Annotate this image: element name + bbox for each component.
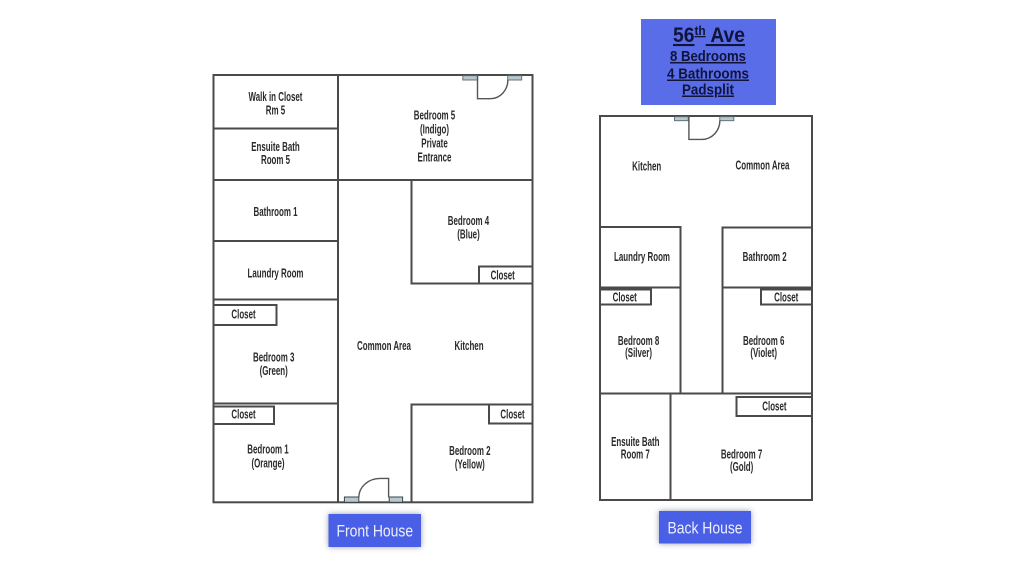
svg-text:Padsplit: Padsplit — [682, 82, 734, 99]
svg-text:8 Bedrooms: 8 Bedrooms — [670, 48, 746, 65]
svg-text:Laundry Room: Laundry Room — [614, 250, 670, 264]
svg-text:Closet: Closet — [500, 408, 525, 422]
svg-text:Closet: Closet — [231, 308, 256, 322]
svg-text:(Yellow): (Yellow) — [455, 458, 485, 472]
svg-text:56th Ave: 56th Ave — [673, 23, 745, 48]
svg-text:Closet: Closet — [231, 408, 256, 422]
svg-text:(Orange): (Orange) — [251, 457, 284, 471]
svg-text:(Silver): (Silver) — [625, 346, 652, 360]
svg-text:Bedroom 4: Bedroom 4 — [448, 214, 490, 228]
svg-text:Room 5: Room 5 — [261, 153, 290, 167]
svg-text:Back House: Back House — [667, 519, 742, 538]
svg-text:Laundry Room: Laundry Room — [248, 267, 304, 281]
svg-text:Entrance: Entrance — [418, 151, 452, 165]
svg-text:Private: Private — [421, 137, 448, 151]
svg-text:Bedroom 3: Bedroom 3 — [253, 351, 295, 365]
svg-text:Bedroom 5: Bedroom 5 — [414, 109, 456, 123]
svg-text:Kitchen: Kitchen — [632, 160, 661, 174]
svg-text:Bathroom 2: Bathroom 2 — [743, 250, 787, 264]
svg-text:4 Bathrooms: 4 Bathrooms — [667, 66, 749, 83]
svg-text:Closet: Closet — [774, 291, 799, 305]
svg-text:Bedroom 2: Bedroom 2 — [449, 444, 491, 458]
svg-text:Front House: Front House — [336, 522, 413, 541]
svg-text:Bedroom 1: Bedroom 1 — [247, 443, 289, 457]
svg-text:Walk in Closet: Walk in Closet — [249, 90, 303, 104]
svg-text:Rm 5: Rm 5 — [266, 104, 285, 118]
svg-text:(Indigo): (Indigo) — [420, 123, 449, 137]
svg-text:Closet: Closet — [491, 269, 516, 283]
svg-text:Closet: Closet — [613, 291, 638, 305]
svg-text:(Gold): (Gold) — [730, 460, 753, 474]
svg-text:(Green): (Green) — [260, 364, 288, 378]
svg-text:Common Area: Common Area — [357, 339, 411, 353]
svg-text:(Violet): (Violet) — [750, 346, 777, 360]
svg-text:Common Area: Common Area — [736, 159, 790, 173]
svg-text:Kitchen: Kitchen — [454, 339, 483, 353]
svg-text:Bathroom 1: Bathroom 1 — [253, 205, 297, 219]
svg-text:Room 7: Room 7 — [621, 448, 650, 462]
svg-text:Closet: Closet — [762, 400, 787, 414]
svg-text:(Blue): (Blue) — [457, 228, 479, 242]
